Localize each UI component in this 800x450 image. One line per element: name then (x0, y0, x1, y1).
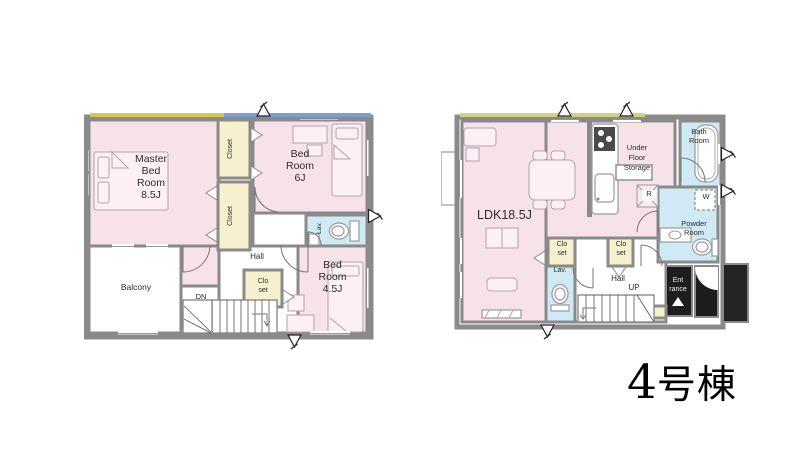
vent-arrow-icon (722, 148, 736, 161)
label-hall-2f: Hall (242, 252, 272, 261)
label-washer-space: W (698, 193, 714, 202)
label-closet-a: Closet (227, 129, 241, 169)
label-lavatory-1f: Lav. (545, 267, 575, 275)
staircase-up-icon (578, 295, 654, 322)
label-closet-1f-left: Clo set (549, 240, 575, 258)
tv-board-icon (482, 310, 521, 318)
label-lavatory-2f: Lav. (316, 213, 328, 243)
label-stairs-down: DN (189, 293, 213, 302)
label-fridge-space: R (642, 190, 656, 199)
vent-arrow-icon (620, 102, 633, 116)
floor-plan-canvas: Master Bed Room 8.5J Closet Closet Bed R… (0, 0, 800, 450)
building-number: 4 (627, 357, 657, 409)
vent-arrow-icon (369, 210, 383, 223)
staircase-down-icon (183, 300, 277, 333)
label-bedroom-45j: Bed Room 4.5J (305, 259, 360, 295)
vent-arrow-icon (288, 335, 301, 349)
label-bath-room: Bath Room (677, 127, 721, 146)
vent-arrow-icon (541, 325, 554, 339)
building-title: 4 号棟 (627, 357, 797, 409)
label-entrance: Ent rance (663, 277, 693, 295)
accent-strip-yellow (90, 113, 224, 117)
label-under-floor-storage: Under Floor Storage (610, 143, 664, 172)
dining-table-icon (529, 151, 575, 209)
label-balcony: Balcony (104, 283, 168, 293)
label-master-bedroom: Master Bed Room 8.5J (116, 153, 186, 201)
label-closet-c: Clo set (247, 277, 279, 295)
label-hall-1f: Hall (603, 274, 633, 283)
building-suffix: 号棟 (657, 365, 737, 408)
hall-upper (253, 213, 306, 246)
toilet-icon (551, 285, 569, 312)
label-closet-1f-right: Clo set (608, 240, 634, 258)
vent-arrow-icon (257, 102, 270, 116)
label-ldk: LDK18.5J (477, 208, 539, 222)
kitchen-wall (587, 121, 592, 217)
vent-arrow-icon (558, 102, 571, 116)
low-table-icon (487, 278, 517, 291)
label-powder-room: Powder Room (669, 219, 719, 238)
label-stairs-up: UP (623, 283, 645, 292)
entrance-porch (723, 264, 748, 322)
toilet-icon (330, 221, 360, 241)
vent-arrow-icon (722, 185, 736, 198)
label-closet-b: Closet (227, 196, 241, 236)
single-bed-icon (332, 124, 362, 196)
kitchen-sink-icon (595, 174, 614, 202)
accent-strip-blue (224, 113, 371, 117)
toilet-icon (693, 239, 719, 256)
label-bedroom-6j: Bed Room 6J (274, 148, 326, 184)
coffee-table-icon (486, 228, 518, 248)
accent-strip-green (460, 113, 645, 117)
